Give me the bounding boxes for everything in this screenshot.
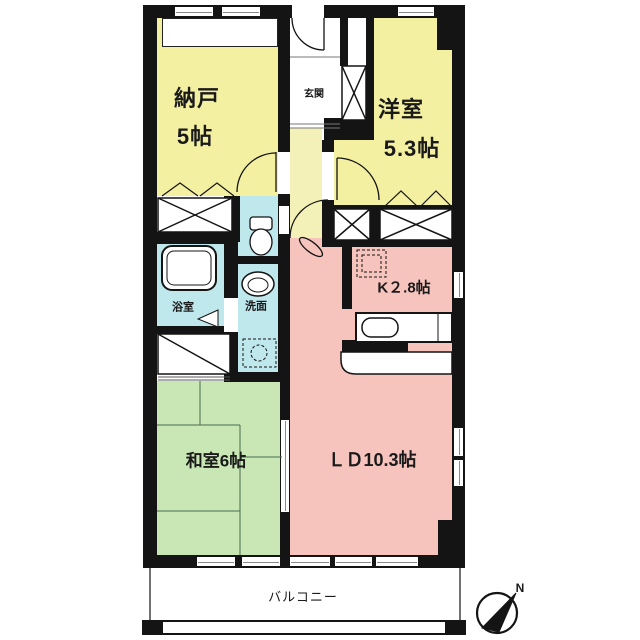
window-balcony-3 — [290, 557, 330, 566]
yoshitsu-door-opening — [322, 152, 334, 200]
compass-icon — [477, 593, 517, 633]
wall-kitchen-west — [342, 247, 352, 309]
wall-genkan-east — [340, 18, 348, 66]
bath-label: 浴室 — [172, 303, 194, 314]
closet-x-shoebox — [342, 66, 366, 120]
entrance-opening — [292, 5, 324, 18]
window-balcony-1 — [197, 557, 235, 566]
window-balcony-5 — [376, 557, 418, 566]
kitchen-label: K２.8帖 — [377, 281, 430, 296]
window-balcony-2 — [242, 557, 280, 566]
room-senmen — [238, 264, 280, 372]
closet-x-small — [334, 209, 370, 240]
wall-toilet-senmen — [238, 256, 280, 264]
compass-north-label: N — [516, 582, 525, 594]
yoshitsu-label: 洋室 — [378, 99, 424, 121]
oshiire-slider-lines — [158, 377, 230, 380]
washitsu-label: 和室6帖 — [186, 453, 246, 470]
wall-closet-notch — [191, 222, 201, 234]
toilet-door-opening — [279, 206, 289, 234]
wall-left — [143, 5, 157, 568]
room-bath — [157, 244, 224, 326]
wall-corner-ne — [437, 5, 465, 50]
wall-kitchen-north — [322, 237, 465, 247]
wall-shoebox-east — [366, 18, 374, 120]
ld-label: ＬＤ10.3帖 — [327, 451, 416, 469]
wall-corner-se — [438, 520, 465, 568]
wall-bath-north — [143, 232, 224, 244]
wall-closet-divider — [370, 207, 380, 240]
window-nando-2 — [222, 7, 260, 16]
wall-bath-east — [224, 196, 238, 382]
bath-door-opening — [224, 298, 238, 332]
entrance-door-arc — [292, 18, 324, 50]
wall-nando-east — [278, 18, 290, 152]
window-yoshitsu — [398, 7, 434, 16]
floor-plan: 納戸 5帖 洋室 5.3帖 玄関 K２.8帖 浴室 洗面 和室6帖 ＬＤ10.3… — [0, 0, 640, 640]
closet-x-yoshitsu — [380, 209, 452, 240]
wall-counter-south — [342, 340, 408, 352]
senmen-label: 洗面 — [245, 302, 267, 313]
wall-below-shoebox — [324, 118, 374, 140]
nando-label: 納戸 — [174, 88, 220, 110]
genkan-label: 玄関 — [304, 90, 324, 100]
window-ld-2 — [454, 460, 463, 486]
nando-size: 5帖 — [177, 126, 213, 148]
window-nando-1 — [175, 7, 213, 16]
hallway — [290, 128, 322, 240]
yoshitsu-size: 5.3帖 — [384, 138, 441, 160]
balcony-label: バルコニー — [268, 591, 338, 604]
wall-closet-row — [334, 205, 452, 209]
nando-door-opening — [278, 152, 290, 194]
window-ld-1 — [454, 428, 463, 456]
nando-alcove — [162, 18, 278, 47]
room-toilet — [238, 196, 280, 256]
washitsu-sliding-door — [281, 420, 289, 512]
window-balcony-4 — [335, 557, 372, 566]
oshiire-closet — [158, 334, 230, 374]
window-kitchen — [454, 272, 463, 298]
room-yoshitsu-lower — [334, 140, 374, 207]
room-ld-west — [290, 238, 334, 555]
